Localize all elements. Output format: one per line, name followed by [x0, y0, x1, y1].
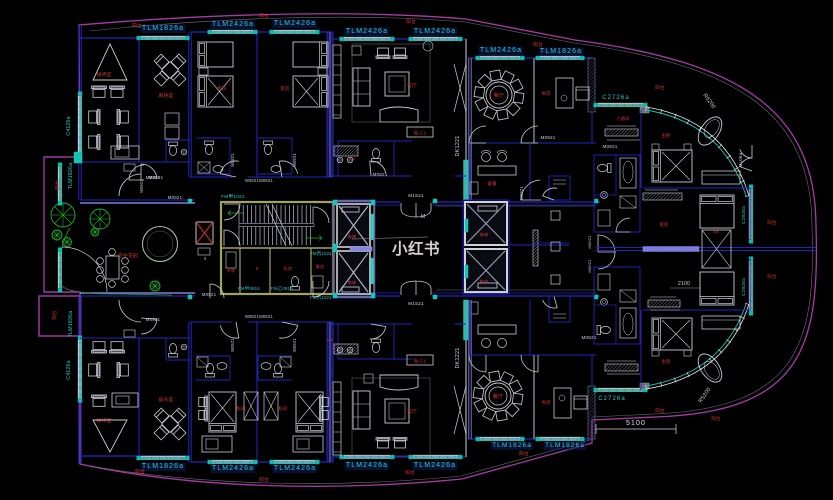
svg-text:C4126a: C4126a	[66, 360, 72, 379]
svg-text:阳台: 阳台	[406, 18, 416, 25]
svg-text:TLM2426a: TLM2426a	[414, 462, 456, 469]
svg-text:娱乐室: 娱乐室	[159, 396, 174, 403]
svg-text:TLM2426a: TLM2426a	[414, 28, 456, 35]
svg-text:服务: 服务	[316, 263, 325, 270]
svg-text:5100: 5100	[626, 420, 646, 427]
svg-text:TLM1826a: TLM1826a	[68, 163, 74, 189]
svg-text:M0821: M0821	[372, 172, 387, 177]
svg-text:电梯: 电梯	[480, 278, 489, 285]
svg-text:TLM2426a: TLM2426a	[274, 20, 316, 27]
svg-text:M0921: M0921	[259, 178, 273, 183]
svg-text:客厅: 客厅	[407, 82, 417, 89]
svg-text:M0921: M0921	[202, 292, 217, 297]
svg-text:TLM2426a: TLM2426a	[274, 465, 316, 472]
svg-text:阳台: 阳台	[519, 450, 529, 457]
svg-text:阳台: 阳台	[132, 22, 142, 29]
svg-text:电梯: 电梯	[480, 231, 489, 238]
svg-text:怡-C1: 怡-C1	[414, 358, 427, 365]
svg-text:M1521: M1521	[408, 193, 424, 199]
svg-text:麻将室: 麻将室	[159, 92, 174, 99]
svg-text:C2926a: C2926a	[741, 206, 747, 224]
svg-text:C2926a: C2926a	[741, 278, 747, 296]
svg-text:阳台: 阳台	[767, 219, 777, 226]
svg-text:标间: 标间	[236, 405, 245, 412]
svg-text:M0921: M0921	[587, 235, 592, 249]
svg-text:客房: 客房	[280, 85, 290, 92]
svg-text:TLM1826a: TLM1826a	[142, 463, 184, 470]
svg-text:阳台: 阳台	[405, 469, 415, 476]
svg-text:M: M	[421, 214, 425, 220]
svg-text:空中花园: 空中花园	[118, 252, 138, 259]
svg-text:M0921: M0921	[230, 153, 235, 167]
svg-text:M0921: M0921	[519, 186, 524, 200]
svg-text:TLM2426a: TLM2426a	[212, 21, 254, 28]
svg-text:A.X: A.X	[327, 338, 334, 342]
svg-text:怡-C1: 怡-C1	[414, 130, 427, 137]
svg-text:客房: 客房	[659, 221, 669, 228]
svg-text:标间: 标间	[278, 405, 287, 412]
svg-text:TLM1826a: TLM1826a	[492, 442, 532, 449]
svg-text:阳台: 阳台	[533, 41, 543, 48]
svg-text:M0921: M0921	[230, 338, 235, 352]
svg-text:小红书: 小红书	[392, 239, 440, 258]
svg-text:M0921: M0921	[146, 317, 161, 322]
svg-text:A.X: A.X	[349, 157, 356, 161]
svg-text:DK1221: DK1221	[455, 347, 461, 368]
svg-text:阳台: 阳台	[655, 84, 665, 91]
svg-text:M0921: M0921	[245, 314, 259, 319]
svg-text:阳台: 阳台	[655, 407, 665, 414]
svg-text:ML06a: ML06a	[738, 152, 743, 167]
svg-text:主卧: 主卧	[661, 358, 671, 365]
svg-text:C2726a: C2726a	[602, 95, 630, 101]
svg-text:M0921: M0921	[259, 314, 273, 319]
svg-text:TLM2426a: TLM2426a	[212, 465, 254, 472]
svg-text:电梯: 电梯	[348, 279, 357, 286]
svg-text:餐厅: 餐厅	[494, 92, 504, 99]
svg-text:阳台: 阳台	[259, 476, 269, 483]
svg-text:TLM1826a: TLM1826a	[142, 25, 184, 32]
svg-text:FM乙0818: FM乙0818	[271, 285, 293, 291]
svg-text:主卧: 主卧	[661, 132, 671, 139]
svg-text:客厅: 客厅	[407, 408, 417, 415]
svg-text:TLM1826a: TLM1826a	[545, 442, 585, 449]
svg-text:阳台: 阳台	[711, 415, 721, 422]
svg-text:阳台: 阳台	[259, 12, 269, 19]
svg-text:小酒间: 小酒间	[616, 115, 629, 122]
svg-text:TLM1826a: TLM1826a	[68, 311, 74, 337]
svg-text:C2726a: C2726a	[598, 396, 626, 402]
svg-text:机房: 机房	[284, 265, 293, 272]
svg-text:M0921: M0921	[146, 175, 161, 180]
svg-text:TLM2426a: TLM2426a	[346, 28, 388, 35]
svg-text:TLM2426a: TLM2426a	[346, 462, 388, 469]
svg-text:FM甲1021: FM甲1021	[221, 194, 245, 200]
svg-text:阳台: 阳台	[135, 468, 145, 475]
svg-text:备餐: 备餐	[487, 180, 497, 187]
svg-text:M0921: M0921	[139, 179, 144, 193]
svg-text:接待室: 接待室	[97, 71, 112, 78]
svg-text:M0821: M0821	[602, 144, 617, 149]
svg-text:M0921: M0921	[245, 178, 259, 183]
svg-text:TLM1826a: TLM1826a	[540, 48, 582, 55]
svg-text:M0921: M0921	[168, 195, 183, 200]
svg-text:M0921: M0921	[292, 153, 297, 167]
svg-text:M0921: M0921	[292, 338, 297, 352]
svg-text:4: 4	[204, 256, 207, 261]
svg-text:DK1221: DK1221	[455, 135, 461, 156]
svg-text:书房: 书房	[541, 90, 551, 97]
svg-text:C4126a: C4126a	[66, 116, 72, 135]
svg-text:M0921: M0921	[540, 135, 555, 140]
svg-text:接待室: 接待室	[97, 417, 112, 424]
svg-text:M1521: M1521	[408, 301, 424, 307]
svg-text:客房: 客房	[217, 85, 227, 92]
svg-text:M0821: M0821	[581, 335, 596, 340]
svg-text:阳台: 阳台	[767, 273, 777, 280]
svg-text:书房: 书房	[541, 399, 551, 406]
svg-text:阳台: 阳台	[54, 180, 61, 190]
svg-text:阳台: 阳台	[51, 310, 58, 320]
svg-text:TLM2426a: TLM2426a	[480, 47, 522, 54]
svg-text:M0921: M0921	[587, 259, 592, 273]
svg-text:餐厅: 餐厅	[493, 393, 503, 400]
svg-text:2100: 2100	[678, 281, 690, 287]
